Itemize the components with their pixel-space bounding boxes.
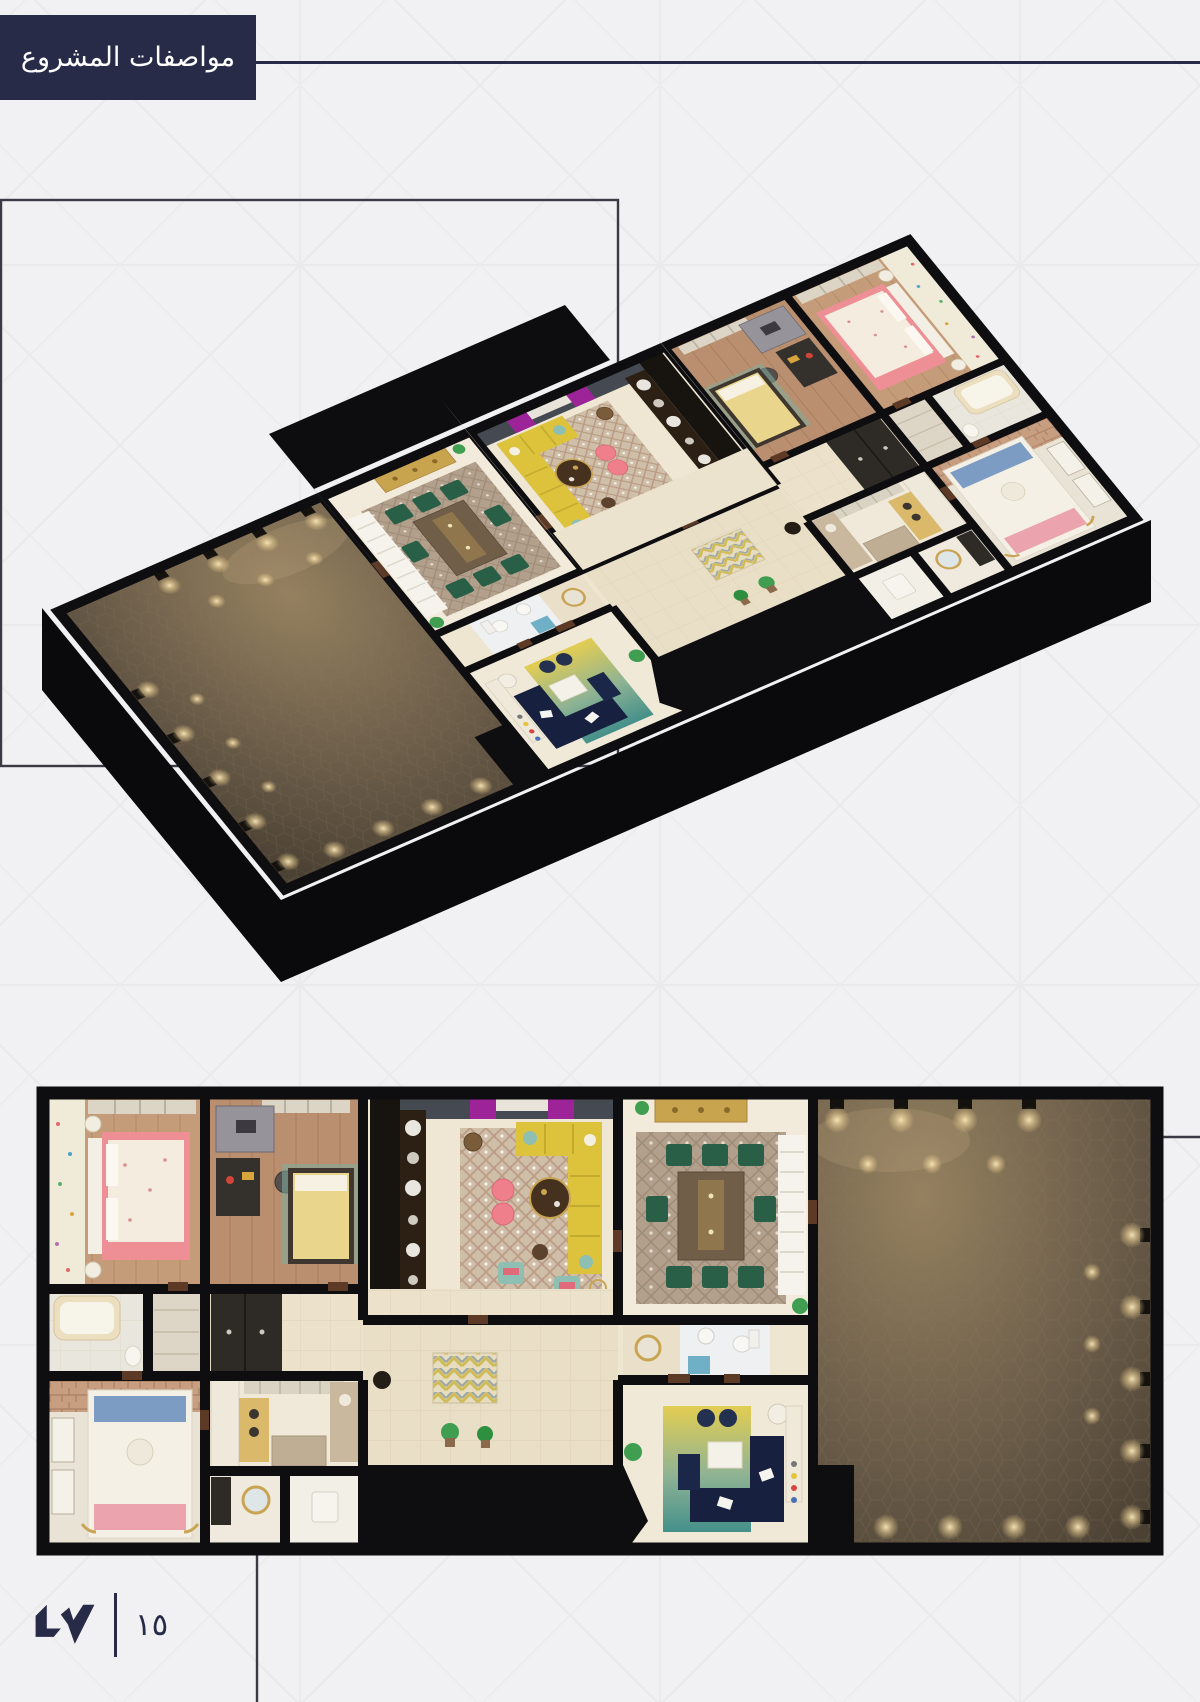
topdown-floorplan-render (30, 1080, 1170, 1560)
footer-divider (114, 1593, 117, 1657)
header-rule (256, 61, 1200, 64)
footer: ١٥ (30, 1592, 168, 1658)
page-number: ١٥ (135, 1593, 168, 1657)
brochure-page: مواصفات المشروع ١٥ (0, 0, 1200, 1702)
header-title-box: مواصفات المشروع (0, 15, 256, 100)
page-title: مواصفات المشروع (21, 42, 235, 73)
lv-logo (30, 1592, 100, 1658)
isometric-floorplan-render (0, 190, 1200, 1090)
